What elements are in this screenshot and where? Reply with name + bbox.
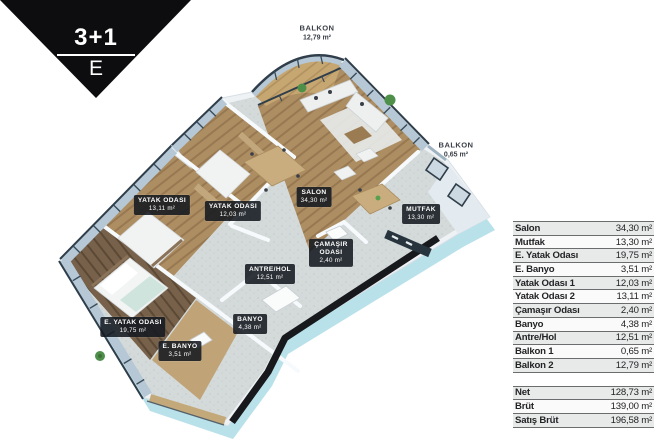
- row-label: E. Yatak Odası: [515, 250, 578, 261]
- table-row: Banyo 4,38 m²: [513, 318, 654, 332]
- label-banyo: BANYO 4,38 m²: [233, 314, 267, 334]
- table-row: Satış Brüt 196,58 m²: [513, 414, 654, 428]
- row-label: Yatak Odası 2: [515, 291, 575, 302]
- table-row: Balkon 2 12,79 m²: [513, 359, 654, 373]
- label-camasir-odasi: ÇAMAŞIR ODASI 2,40 m²: [309, 239, 353, 267]
- row-value: 12,03 m²: [616, 278, 652, 289]
- area-table: Salon 34,30 m² Mutfak 13,30 m² E. Yatak …: [513, 221, 654, 428]
- row-label: Brüt: [515, 401, 534, 412]
- row-value: 2,40 m²: [621, 305, 652, 316]
- row-value: 4,38 m²: [621, 319, 652, 330]
- table-row: E. Yatak Odası 19,75 m²: [513, 249, 654, 263]
- row-value: 128,73 m²: [611, 387, 652, 398]
- table-row: E. Banyo 3,51 m²: [513, 263, 654, 277]
- row-label: Yatak Odası 1: [515, 278, 575, 289]
- row-label: Balkon 2: [515, 360, 553, 371]
- table-row: Çamaşır Odası 2,40 m²: [513, 304, 654, 318]
- row-value: 13,30 m²: [616, 237, 652, 248]
- row-value: 0,65 m²: [621, 346, 652, 357]
- table-row: Brüt 139,00 m²: [513, 400, 654, 414]
- unit-badge: 3+1 E: [0, 0, 200, 105]
- label-balkon-2: BALKON 12,79 m²: [300, 24, 335, 43]
- row-value: 12,51 m²: [616, 332, 652, 343]
- label-e-yatak-odasi: E. YATAK ODASI 19,75 m²: [100, 317, 165, 337]
- table-row: Balkon 1 0,65 m²: [513, 345, 654, 359]
- row-value: 12,79 m²: [616, 360, 652, 371]
- row-value: 13,11 m²: [616, 291, 652, 302]
- row-label: E. Banyo: [515, 264, 554, 275]
- row-label: Mutfak: [515, 237, 545, 248]
- row-value: 139,00 m²: [611, 401, 652, 412]
- row-label: Banyo: [515, 319, 543, 330]
- row-label: Çamaşır Odası: [515, 305, 580, 316]
- unit-badge-text: 3+1 E: [0, 0, 192, 79]
- row-label: Balkon 1: [515, 346, 553, 357]
- label-mutfak: MUTFAK 13,30 m²: [402, 204, 440, 224]
- row-label: Net: [515, 387, 530, 398]
- table-row: Mutfak 13,30 m²: [513, 236, 654, 250]
- row-value: 34,30 m²: [616, 223, 652, 234]
- label-antre-hol: ANTRE/HOL 12,51 m²: [245, 264, 295, 284]
- row-value: 19,75 m²: [616, 250, 652, 261]
- table-row: Yatak Odası 1 12,03 m²: [513, 277, 654, 291]
- label-yatak-odasi-1: YATAK ODASI 12,03 m²: [205, 201, 261, 221]
- table-row: Yatak Odası 2 13,11 m²: [513, 290, 654, 304]
- area-table-summary: Net 128,73 m² Brüt 139,00 m² Satış Brüt …: [513, 386, 654, 428]
- unit-block-label: E: [0, 58, 192, 79]
- table-row: Net 128,73 m²: [513, 387, 654, 401]
- label-yatak-odasi-2: YATAK ODASI 13,11 m²: [134, 195, 190, 215]
- row-label: Antre/Hol: [515, 332, 556, 343]
- unit-badge-divider: [57, 54, 135, 56]
- label-salon: SALON 34,30 m²: [297, 187, 332, 207]
- table-gap: [513, 373, 654, 386]
- table-row: Salon 34,30 m²: [513, 222, 654, 236]
- row-value: 196,58 m²: [611, 415, 652, 426]
- table-row: Antre/Hol 12,51 m²: [513, 332, 654, 346]
- label-e-banyo: E. BANYO 3,51 m²: [158, 341, 201, 361]
- area-table-rooms: Salon 34,30 m² Mutfak 13,30 m² E. Yatak …: [513, 221, 654, 373]
- unit-type-label: 3+1: [0, 26, 192, 50]
- row-label: Satış Brüt: [515, 415, 558, 426]
- row-label: Salon: [515, 223, 540, 234]
- label-balkon-1: BALKON 0,65 m²: [439, 141, 474, 160]
- row-value: 3,51 m²: [621, 264, 652, 275]
